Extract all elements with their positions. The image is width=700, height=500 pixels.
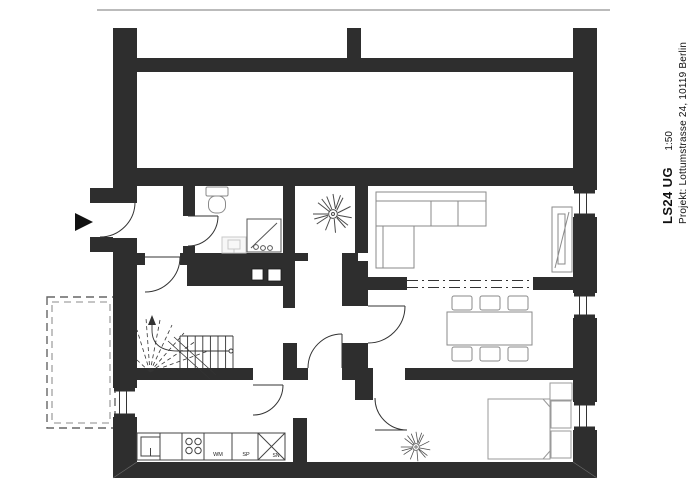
floor-plan-drawing: WM SP SN bbox=[0, 0, 700, 500]
entrance-door-icon bbox=[100, 202, 135, 237]
sofa-icon bbox=[376, 192, 486, 268]
sink-icon bbox=[222, 237, 246, 253]
lightwell-dashed-outline bbox=[47, 297, 115, 428]
window-right-bottom-icon bbox=[574, 402, 595, 430]
title-line: LS24 UG 1:50 bbox=[659, 9, 677, 224]
plant-icon bbox=[313, 194, 352, 233]
room-opening-dashdot bbox=[407, 281, 533, 288]
kitchen-door-icon bbox=[253, 385, 283, 415]
washing-machine-label: WM bbox=[213, 452, 223, 458]
shower-icon bbox=[247, 219, 281, 252]
bed-icon bbox=[488, 383, 572, 459]
stair-treads bbox=[180, 336, 233, 368]
entrance-arrow-icon bbox=[75, 213, 93, 231]
window-right-middle-icon bbox=[574, 293, 595, 318]
dining-room-furniture bbox=[447, 296, 532, 361]
kitchen-counter bbox=[137, 433, 285, 460]
bedroom-furniture bbox=[488, 383, 572, 459]
dining-table-icon bbox=[447, 312, 532, 345]
plan-title: LS24 UG bbox=[660, 167, 675, 224]
window-right-top-icon bbox=[574, 190, 595, 217]
project-address: Projekt: Lottumstrasse 24, 10119 Berlin bbox=[678, 9, 689, 224]
plan-scale: 1:50 bbox=[664, 131, 675, 150]
floor-plan-page: WM SP SN LS24 UG 1:50 Projekt: Lottumstr… bbox=[0, 0, 700, 500]
stair-walk-line bbox=[148, 315, 233, 353]
bedroom-door-icon bbox=[375, 398, 407, 430]
stair-hall-door-icon bbox=[145, 257, 180, 292]
bathroom-door-icon bbox=[188, 216, 218, 246]
title-block: LS24 UG 1:50 Projekt: Lottumstrasse 24, … bbox=[659, 9, 689, 224]
living-room-furniture bbox=[376, 192, 572, 272]
dishwasher-label: SP bbox=[242, 452, 250, 458]
x-unit-label: SN bbox=[273, 453, 280, 459]
dining-door-icon bbox=[368, 306, 405, 343]
hall-door-icon bbox=[308, 334, 342, 368]
bathroom-fixtures bbox=[206, 187, 281, 253]
toilet-icon bbox=[206, 187, 228, 213]
tv-board-icon bbox=[552, 207, 572, 272]
plant-icon bbox=[401, 432, 430, 461]
window-left-icon bbox=[114, 388, 135, 417]
